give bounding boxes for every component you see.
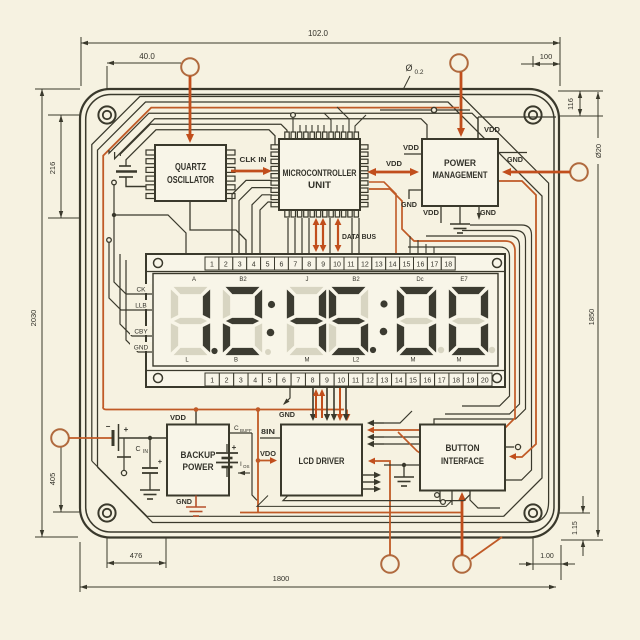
svg-text:CK: CK (136, 287, 146, 294)
svg-text:216: 216 (48, 162, 57, 175)
svg-text:13: 13 (380, 378, 388, 385)
svg-text:B2: B2 (239, 277, 247, 283)
svg-text:GND: GND (279, 410, 296, 419)
svg-text:7: 7 (296, 378, 300, 385)
svg-text:M: M (457, 358, 462, 364)
svg-text:VDD: VDD (403, 143, 420, 152)
svg-text:16: 16 (424, 378, 432, 385)
svg-text:VDO: VDO (260, 449, 276, 458)
svg-text:1850: 1850 (587, 309, 596, 326)
svg-text:1: 1 (210, 378, 214, 385)
svg-text:BACKUP: BACKUP (181, 450, 217, 461)
svg-text:CBY: CBY (134, 329, 148, 336)
svg-text:100: 100 (540, 52, 553, 61)
svg-text:M: M (411, 358, 416, 364)
svg-text:9: 9 (325, 378, 329, 385)
svg-text:M: M (305, 358, 310, 364)
svg-text:18: 18 (452, 378, 460, 385)
svg-text:VDD: VDD (484, 125, 501, 134)
svg-text:1.15: 1.15 (572, 521, 579, 535)
svg-text:10: 10 (337, 378, 345, 385)
svg-text:OSCILLATOR: OSCILLATOR (167, 175, 215, 186)
svg-text:BUTTON: BUTTON (446, 443, 480, 454)
svg-text:INTERFACE: INTERFACE (441, 456, 484, 467)
svg-text:L2: L2 (353, 358, 360, 364)
svg-text:+: + (232, 443, 237, 452)
svg-text:17: 17 (430, 262, 438, 269)
svg-text:+: + (124, 425, 129, 434)
svg-text:15: 15 (409, 378, 417, 385)
svg-text:Ø20: Ø20 (594, 144, 603, 158)
svg-text:405: 405 (48, 473, 57, 486)
svg-text:LLB: LLB (135, 303, 147, 310)
svg-text:11: 11 (347, 262, 354, 269)
svg-text:5: 5 (268, 378, 272, 385)
svg-text:J: J (306, 277, 309, 283)
svg-text:LCD DRIVER: LCD DRIVER (299, 456, 345, 467)
svg-text:14: 14 (395, 378, 403, 385)
svg-text:11: 11 (352, 378, 359, 385)
svg-text:GND: GND (176, 497, 193, 506)
svg-text:3: 3 (238, 262, 242, 269)
svg-text:5: 5 (266, 262, 270, 269)
svg-text:POWER: POWER (444, 158, 476, 169)
svg-text:VDD: VDD (423, 208, 440, 217)
svg-text:DATA BUS: DATA BUS (342, 232, 376, 241)
svg-text:UNIT: UNIT (308, 180, 331, 191)
svg-text:Dc: Dc (416, 277, 423, 283)
svg-text:6: 6 (279, 262, 283, 269)
svg-text:4: 4 (252, 262, 256, 269)
svg-text:12: 12 (366, 378, 374, 385)
svg-text:15: 15 (403, 262, 411, 269)
svg-text:A: A (192, 277, 196, 283)
svg-text:3: 3 (239, 378, 243, 385)
svg-text:476: 476 (130, 551, 143, 560)
svg-text:2: 2 (224, 262, 228, 269)
svg-text:GND: GND (507, 155, 524, 164)
svg-text:QUARTZ: QUARTZ (175, 162, 206, 173)
svg-text:VDD: VDD (170, 413, 187, 422)
svg-text:102.0: 102.0 (308, 29, 329, 38)
svg-text:18: 18 (444, 262, 452, 269)
svg-text:4: 4 (253, 378, 257, 385)
svg-text:C: C (135, 446, 140, 453)
svg-text:MICROCONTROLLER: MICROCONTROLLER (283, 168, 357, 179)
svg-text:MANAGEMENT: MANAGEMENT (433, 170, 488, 181)
svg-text:Ø: Ø (405, 63, 412, 73)
svg-text:1: 1 (210, 262, 214, 269)
svg-text:OS: OS (243, 464, 250, 469)
svg-text:13: 13 (375, 262, 383, 269)
svg-text:CLK IN: CLK IN (240, 155, 267, 164)
svg-text:1800: 1800 (273, 574, 290, 583)
svg-text:9: 9 (321, 262, 325, 269)
svg-text:20: 20 (481, 378, 489, 385)
svg-text:2: 2 (225, 378, 229, 385)
svg-text:12: 12 (361, 262, 369, 269)
svg-text:14: 14 (389, 262, 397, 269)
svg-text:116: 116 (566, 98, 575, 110)
svg-text:2030: 2030 (29, 310, 38, 327)
svg-text:10: 10 (333, 262, 341, 269)
svg-text:19: 19 (467, 378, 475, 385)
svg-text:0.2: 0.2 (414, 69, 423, 76)
svg-text:IN: IN (143, 449, 148, 455)
svg-text:+: + (158, 457, 163, 466)
svg-text:−: − (106, 422, 111, 431)
svg-text:6: 6 (282, 378, 286, 385)
svg-text:8: 8 (311, 378, 315, 385)
svg-text:I: I (240, 461, 242, 468)
svg-text:POWER: POWER (183, 462, 214, 473)
svg-text:B: B (234, 358, 238, 364)
svg-text:B2: B2 (352, 277, 360, 283)
svg-text:16: 16 (417, 262, 425, 269)
svg-text:17: 17 (438, 378, 446, 385)
svg-text:7: 7 (293, 262, 297, 269)
svg-text:BUFF: BUFF (240, 428, 252, 433)
svg-text:8IN: 8IN (261, 427, 275, 436)
svg-text:VDD: VDD (386, 159, 403, 168)
svg-text:8: 8 (307, 262, 311, 269)
svg-text:40.0: 40.0 (139, 52, 155, 61)
svg-text:GND: GND (134, 345, 149, 352)
svg-text:E7: E7 (460, 277, 468, 283)
svg-text:C: C (234, 425, 239, 432)
svg-text:GND: GND (480, 208, 497, 217)
svg-text:1.00: 1.00 (540, 553, 554, 560)
svg-text:GND: GND (401, 200, 418, 209)
